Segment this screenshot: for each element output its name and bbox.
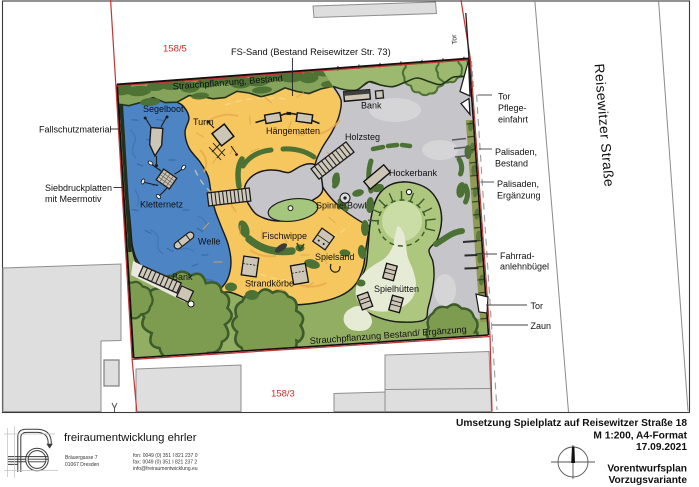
svg-text:01067 Dresden: 01067 Dresden xyxy=(65,462,99,468)
svg-text:anlehnbügel: anlehnbügel xyxy=(500,262,549,272)
svg-text:FS-Sand (Bestand Reisewitzer S: FS-Sand (Bestand Reisewitzer Str. 73) xyxy=(231,47,391,57)
svg-text:fax: 0049 (0) 351 I 821 237 2: fax: 0049 (0) 351 I 821 237 2 xyxy=(133,460,197,466)
svg-text:Hockerbank: Hockerbank xyxy=(389,168,438,178)
svg-text:fon: 0049 (0) 351 I 821 237 0: fon: 0049 (0) 351 I 821 237 0 xyxy=(133,453,198,459)
svg-text:Tor: Tor xyxy=(531,301,544,311)
svg-text:Bank: Bank xyxy=(172,272,193,282)
svg-text:Spielhütten: Spielhütten xyxy=(374,284,419,294)
svg-text:Hängematten: Hängematten xyxy=(266,126,320,136)
svg-text:Holzsteg: Holzsteg xyxy=(345,132,380,142)
svg-text:Welle: Welle xyxy=(198,237,220,247)
svg-text:Tor: Tor xyxy=(451,33,459,44)
svg-text:Ergänzung: Ergänzung xyxy=(497,191,541,201)
svg-text:M 1:200, A4-Format: M 1:200, A4-Format xyxy=(593,431,687,442)
svg-text:Siebdruckplatten: Siebdruckplatten xyxy=(45,183,112,193)
svg-text:Kletternetz: Kletternetz xyxy=(140,200,184,210)
svg-text:Turm: Turm xyxy=(193,117,214,127)
svg-text:158/5: 158/5 xyxy=(163,44,187,55)
svg-text:17.09.2021: 17.09.2021 xyxy=(636,442,687,453)
svg-text:freiraumentwicklung ehrler: freiraumentwicklung ehrler xyxy=(64,432,197,444)
svg-text:Pflege-: Pflege- xyxy=(498,103,527,113)
svg-text:Fallschutzmaterial: Fallschutzmaterial xyxy=(39,125,112,135)
svg-text:Umsetzung Spielplatz auf Reise: Umsetzung Spielplatz auf Reisewitzer Str… xyxy=(456,418,687,429)
svg-text:Bestand: Bestand xyxy=(495,159,528,169)
svg-text:Segelboot: Segelboot xyxy=(143,104,184,114)
svg-text:einfahrt: einfahrt xyxy=(498,115,529,125)
svg-text:Fischwippe: Fischwippe xyxy=(262,231,307,241)
svg-text:Fahrrad-: Fahrrad- xyxy=(500,251,535,261)
svg-text:Vorzugsvariante: Vorzugsvariante xyxy=(608,475,687,486)
svg-text:Vorentwurfsplan: Vorentwurfsplan xyxy=(607,464,687,475)
svg-text:Palisaden,: Palisaden, xyxy=(497,179,539,189)
svg-text:Strandkörbe: Strandkörbe xyxy=(245,279,294,289)
svg-text:Bank: Bank xyxy=(361,101,382,111)
svg-text:Zaun: Zaun xyxy=(531,321,552,331)
svg-text:158/3: 158/3 xyxy=(271,389,295,400)
svg-text:SpinnerBowl: SpinnerBowl xyxy=(316,201,367,211)
svg-text:info@freiraumentwicklung.eu: info@freiraumentwicklung.eu xyxy=(133,466,198,472)
svg-text:Spielsand: Spielsand xyxy=(315,252,355,262)
svg-text:Tor: Tor xyxy=(498,92,511,102)
svg-text:Palisaden,: Palisaden, xyxy=(495,147,537,157)
svg-text:mit Meermotiv: mit Meermotiv xyxy=(45,194,102,204)
svg-text:Bräuergasse 7: Bräuergasse 7 xyxy=(65,455,98,461)
